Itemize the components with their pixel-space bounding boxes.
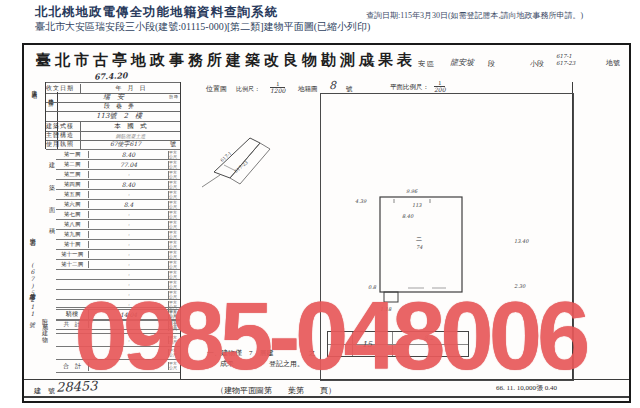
divider-left-form	[180, 82, 181, 379]
floor-label: 第八層	[56, 221, 89, 228]
address-lane-value: 段 巷 弄	[58, 102, 180, 111]
floor-row: 第二層77.04平方公尺	[56, 160, 180, 170]
plan-center-area: 74	[416, 244, 423, 250]
area-unit: 平方公尺	[168, 231, 180, 239]
lot-prefix: 大	[366, 57, 375, 70]
note-line-2: 成果 登記之用。	[220, 359, 304, 369]
floor-value: ·	[89, 191, 168, 198]
floor-label: 第六層	[56, 201, 89, 208]
structure-label: 主體構造	[46, 131, 81, 140]
bottom-inner-line	[24, 396, 629, 398]
document-subtitle: 臺北市大安區瑞安段三小段(建號:01115-000)[第二類]建物平面圖(已縮小…	[35, 20, 370, 34]
area-unit: 平方公尺	[168, 191, 180, 199]
floor-label: 第十一層	[56, 251, 89, 258]
applicant-label: 申請人姓名	[32, 85, 39, 143]
lot-number-1: 617-1	[556, 53, 572, 59]
area-unit: 平方公尺	[168, 161, 180, 169]
form-title: 臺北市古亭地政事務所建築改良物勘測成果表	[36, 51, 416, 70]
floor-value: ·	[89, 171, 168, 178]
area-unit: 平方公尺	[168, 151, 180, 159]
district: 安區	[418, 59, 436, 69]
floor-value: ·	[89, 261, 168, 268]
area-unit: 平方公尺	[168, 221, 180, 229]
area-unit: 平方公尺	[168, 349, 180, 357]
attached-row: ·平方公尺	[56, 347, 180, 360]
scanned-document: 臺北市古亭地政事務所建築改良物勘測成果表 大 安區 龍安坡 段 小段 617-1…	[22, 43, 631, 403]
floor-label: 第四層	[56, 181, 89, 188]
page: 北北桃地政電傳全功能地籍資料查詢系統 臺北市大安區瑞安段三小段(建號:01115…	[0, 0, 640, 408]
floor-value: ·	[89, 241, 168, 248]
cadastral-map-no-unit: 號	[346, 85, 353, 94]
margin-file-number: (67)古地二字第5211號	[27, 261, 36, 356]
structure-value: 鋼筋混凝土造	[81, 133, 180, 139]
plan-dim-top: 9.96	[406, 188, 418, 194]
floor-label: 第十層	[56, 241, 89, 248]
received-date-stamp: 67.4.20	[94, 70, 128, 82]
system-title: 北北桃地政電傳全功能地籍資料查詢系統	[35, 4, 278, 21]
floor-value: ·	[89, 291, 168, 298]
address-street-unit: 街路	[169, 95, 180, 99]
floor-row: 第九層·平方公尺	[56, 230, 180, 240]
floor-row: 第三層·平方公尺	[56, 170, 180, 180]
floor-label: 第三層	[56, 171, 89, 178]
floor-value: ·	[89, 211, 168, 218]
plan-dim-left: 4.39	[355, 198, 367, 204]
area-unit: 平方公尺	[168, 362, 180, 370]
map-scale-label: 比例尺：	[236, 85, 260, 94]
area-unit: 平方公尺	[168, 181, 180, 189]
area-unit: 平方公尺	[168, 323, 180, 331]
floor-row-blank: ·平方公尺	[56, 280, 180, 290]
attached-table: 騎樓14.04平方公尺 ·平方公尺 ·平方公尺 ·平方公尺 合 計平方公尺	[56, 307, 180, 373]
map-scale-fraction: 1 1200	[270, 81, 285, 94]
floor-label: 第五層	[56, 191, 89, 198]
plan-dim-notch: 0.8	[368, 284, 377, 290]
lot-number-2: 617-23	[556, 60, 575, 66]
license-value: 67使字617	[81, 140, 170, 149]
floor-value: 8.40	[89, 151, 168, 158]
plan-dim-right2: 2.30	[514, 283, 526, 289]
floor-value: ·	[89, 251, 168, 258]
attached-value: ·	[89, 350, 168, 357]
attached-total-label: 合 計	[56, 362, 89, 371]
floor-label: 第九層	[56, 231, 89, 238]
attached-total-row: 合 計平方公尺	[56, 360, 180, 373]
footer-center: （建物平面圖第 葉第 頁）	[216, 385, 336, 396]
plan-scale-fraction: 1 200	[434, 80, 445, 93]
plan-dim-right: 13.40	[514, 238, 529, 244]
area-unit: 平方公尺	[168, 291, 180, 299]
plan-center-floor: 二	[416, 235, 422, 242]
stamp-fragment-2: 8.2	[424, 334, 434, 341]
print-info: 66. 11. 10,000張 0.40	[496, 383, 557, 393]
floor-row: 第五層·平方公尺	[56, 190, 180, 200]
floor-row: 第一層8.40平方公尺	[56, 150, 180, 160]
query-date: 查詢日期:115年3月30日(如需登記謄本,請向地政事務所申請。)	[366, 10, 583, 21]
license-unit: 號	[170, 140, 180, 149]
attached-row: ·平方公尺	[56, 321, 180, 334]
floor-area-table: 第一層8.40平方公尺 第二層77.04平方公尺 第三層·平方公尺 第四層8.4…	[56, 149, 180, 330]
floor-row: 第十層·平方公尺	[56, 240, 180, 250]
floor-row: 第七層·平方公尺	[56, 210, 180, 220]
floor-label: 第十二層	[56, 261, 89, 268]
style-label: 建築式樣	[46, 122, 81, 131]
area-unit: 平方公尺	[168, 336, 180, 344]
attached-side-label: 附屬建物	[40, 313, 49, 373]
cadastral-map-no: 8	[329, 79, 336, 92]
floor-value: 8.4	[89, 201, 168, 208]
plan-dim-top-inner: 113	[412, 202, 422, 208]
floor-label: 第二層	[56, 161, 89, 168]
floor-row: 第八層·平方公尺	[56, 220, 180, 230]
building-no-label: 建 號	[34, 386, 55, 396]
floor-row-blank: ·平方公尺	[56, 270, 180, 280]
area-unit: 平方公尺	[168, 251, 180, 259]
floor-value: ·	[89, 231, 168, 238]
area-unit: 平方公尺	[168, 241, 180, 249]
area-side-label: 建築面積	[47, 157, 56, 297]
note-line-1: 一、建物僅 7 層建 之	[207, 348, 316, 358]
sketch-lot-label-2: 617-23	[233, 160, 248, 174]
stamp-box: 15 8.2	[327, 331, 469, 357]
attached-value: ·	[89, 337, 168, 344]
margin-printed-label: 申請書	[28, 233, 37, 259]
floor-row: 第六層8.4平方公尺	[56, 200, 180, 210]
area-unit: 平方公尺	[168, 310, 180, 318]
area-unit: 平方公尺	[168, 271, 180, 279]
style-value: 本 國 式	[81, 122, 180, 131]
cadastral-map-label: 地籍圖	[298, 85, 318, 94]
floor-row: 第十二層·平方公尺	[56, 260, 180, 270]
attached-row: 騎樓14.04平方公尺	[56, 308, 180, 321]
plan-dim-bottom: 1.18	[380, 306, 392, 312]
map-label: 位置圖	[206, 84, 227, 94]
plan-dim-top-inner2: 8.40	[402, 213, 414, 219]
floor-value: ·	[89, 271, 168, 278]
floor-row: 第四層8.40平方公尺	[56, 180, 180, 190]
floor-value: ·	[89, 281, 168, 288]
address-number-value: 113號 2 樓	[58, 111, 180, 121]
floor-row: 第十一層·平方公尺	[56, 250, 180, 260]
map-scale-den: 1200	[270, 88, 285, 94]
plan-scale-den: 200	[434, 87, 445, 93]
address-street-value: 瑞 安	[58, 92, 169, 102]
lot-label: 地號	[606, 58, 620, 68]
area-unit: 平方公尺	[168, 261, 180, 269]
section-label: 段	[488, 59, 495, 69]
area-unit: 平方公尺	[168, 281, 180, 289]
floor-label: 第一層	[56, 151, 89, 158]
attached-value: 14.04	[89, 311, 168, 318]
floor-value: 8.40	[89, 181, 168, 188]
area-unit: 平方公尺	[168, 211, 180, 219]
footer-divider	[24, 379, 629, 380]
license-label: 使用執照	[46, 140, 81, 149]
attached-value: ·	[89, 324, 168, 331]
floor-row-blank: ·平方公尺	[56, 290, 180, 300]
floor-value: 77.04	[89, 161, 168, 168]
plan-scale-label: 平面比例尺：	[390, 83, 429, 92]
attached-label: 騎樓	[56, 310, 89, 319]
area-unit: 平方公尺	[168, 201, 180, 209]
attached-row: ·平方公尺	[56, 334, 180, 347]
subsection-label: 小段	[530, 59, 544, 69]
floor-plan: 9.96 113 8.40 4.39 13.40 2.30 0.8 1.18 二…	[354, 185, 572, 315]
floor-value: ·	[89, 221, 168, 228]
floor-label: 第七層	[56, 211, 89, 218]
area-unit: 平方公尺	[168, 171, 180, 179]
section-value: 龍安坡	[450, 57, 474, 68]
stamp-fragment-1: 15	[362, 340, 372, 349]
location-sketch: 617-1 617-23	[184, 125, 324, 240]
building-no-value: 28453	[56, 378, 98, 394]
